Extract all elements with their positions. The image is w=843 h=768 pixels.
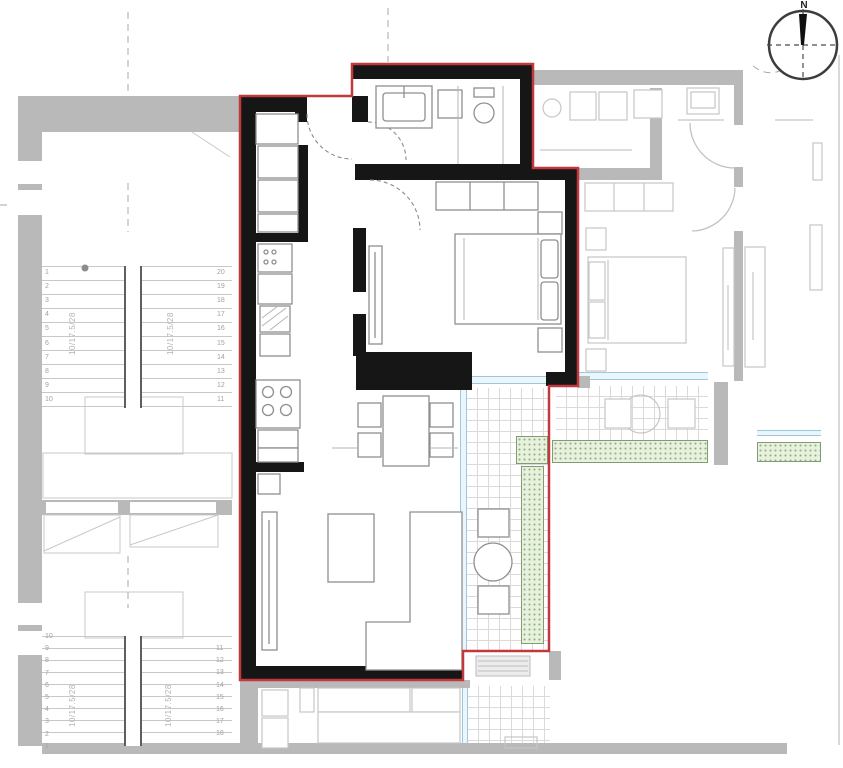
- stair-start-dot: [82, 265, 89, 272]
- sofa-symbol: [366, 512, 462, 670]
- stair-step-number: 6: [45, 340, 59, 347]
- stair-step-number: 2: [45, 731, 59, 738]
- stair-step-number: 7: [45, 670, 59, 677]
- stair-step-number: 18: [217, 297, 231, 304]
- compass-north-label: N: [796, 0, 812, 11]
- stair-step-number: 17: [217, 311, 231, 318]
- toilet-symbol: [474, 103, 494, 123]
- stair-step-number: 14: [217, 354, 231, 361]
- compass: [767, 9, 839, 81]
- stair-step-number: 7: [45, 354, 59, 361]
- stair-spec-label: 10/17.5/28: [68, 296, 77, 372]
- stair-step-number: 3: [45, 718, 59, 725]
- floor-plan: N 12345678910 20191817161514131211 10987…: [0, 0, 843, 768]
- stair-step-number: 16: [217, 325, 231, 332]
- stair-spec-label: 10/17.5/28: [166, 296, 175, 372]
- stair-step-number: 12: [217, 382, 231, 389]
- kitchen-furniture: [256, 114, 300, 650]
- neighbor-sink-symbol: [543, 99, 561, 117]
- stair-step-number: 1: [45, 743, 59, 750]
- stair-spec-label: 10/17.5/28: [68, 668, 77, 744]
- kitchen-sink-symbol: [258, 244, 292, 272]
- stair-step-number: 18: [216, 730, 230, 737]
- dining-table-symbol: [383, 396, 429, 466]
- stair-step-number: 11: [216, 645, 230, 652]
- bedroom-furniture: [369, 182, 562, 352]
- stair-step-number: 5: [45, 325, 59, 332]
- stair-step-number: 9: [45, 645, 59, 652]
- neighbor-door-arc: [692, 188, 735, 231]
- stair-step-number: 8: [45, 657, 59, 664]
- stair-step-number: 4: [45, 706, 59, 713]
- plan-drawing: [0, 0, 843, 768]
- stair-spec-label: 10/17.5/28: [164, 668, 173, 744]
- stair-step-number: 2: [45, 283, 59, 290]
- stair-step-number: 10: [45, 396, 59, 403]
- bedroom-door-arc: [370, 180, 420, 230]
- stair-step-number: 5: [45, 694, 59, 701]
- dishwasher-symbol: [260, 306, 290, 332]
- bed-symbol: [455, 234, 561, 324]
- stair-step-number: 15: [216, 694, 230, 701]
- stair-step-number: 10: [45, 633, 59, 640]
- stair-step-number: 12: [216, 657, 230, 664]
- neighbor-wardrobe-symbol: [585, 183, 673, 211]
- stove-symbol: [256, 380, 300, 428]
- stair-step-number: 1: [45, 269, 59, 276]
- stair-step-number: 13: [217, 368, 231, 375]
- stair-step-number: 8: [45, 368, 59, 375]
- stair-step-number: 11: [217, 396, 231, 403]
- stair-step-number: 9: [45, 382, 59, 389]
- entry-door-arc: [307, 114, 352, 159]
- stair-step-number: 13: [216, 669, 230, 676]
- balcony-table-symbol: [474, 543, 512, 581]
- stair-step-number: 4: [45, 311, 59, 318]
- stair-step-number: 17: [216, 718, 230, 725]
- neighbor-door-arc: [690, 123, 735, 168]
- stair-step-number: 15: [217, 340, 231, 347]
- coffee-table-symbol: [328, 514, 374, 582]
- stair-step-number: 19: [217, 283, 231, 290]
- living-furniture: [328, 396, 462, 670]
- balcony-furniture: [474, 509, 512, 614]
- wardrobe-symbol: [436, 182, 538, 210]
- stair-step-number: 14: [216, 682, 230, 689]
- stair-step-number: 20: [217, 269, 231, 276]
- stair-step-number: 3: [45, 297, 59, 304]
- stair-step-number: 16: [216, 706, 230, 713]
- bathroom-furniture: [376, 86, 503, 164]
- stair-step-number: 6: [45, 682, 59, 689]
